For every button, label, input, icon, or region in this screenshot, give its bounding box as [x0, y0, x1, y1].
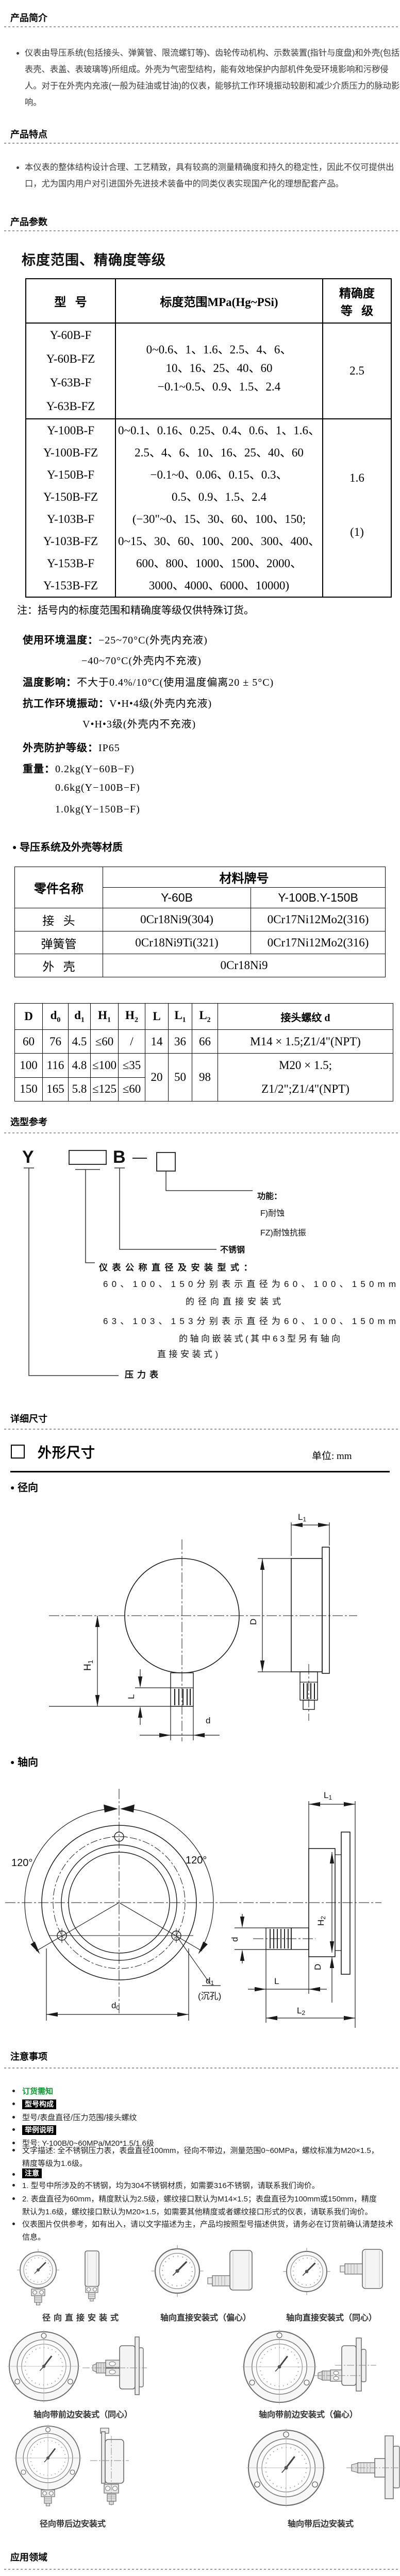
svg-text:d: d: [230, 1937, 240, 1942]
svg-text:径向带后边安装式: 径向带后边安装式: [40, 2519, 106, 2529]
svg-text:—: —: [132, 1149, 147, 1165]
svg-text:L1: L1: [298, 1512, 306, 1523]
svg-text:L2: L2: [297, 2006, 305, 2016]
svg-text:F)耐蚀: F)耐蚀: [260, 1209, 285, 1218]
svg-text:120°: 120°: [186, 1855, 207, 1866]
svg-text:直接安装式): 直接安装式): [157, 1349, 221, 1359]
svg-text:轴向带后边安装式: 轴向带后边安装式: [288, 2519, 354, 2529]
svg-text:d0: d0: [111, 2001, 120, 2011]
svg-text:D: D: [313, 1964, 323, 1970]
svg-text:d1: d1: [206, 1976, 214, 1987]
svg-text:径向直接安装式: 径向直接安装式: [42, 2313, 122, 2323]
svg-text:63、103、153分别表示直径为60、100、150mm: 63、103、153分别表示直径为60、100、150mm: [103, 1316, 399, 1326]
svg-text:轴向带前边安装式（偏心）: 轴向带前边安装式（偏心）: [259, 2410, 358, 2419]
svg-text:功能：: 功能：: [257, 1191, 282, 1201]
svg-text:轴向直接安装式（偏心）: 轴向直接安装式（偏心）: [160, 2313, 251, 2323]
svg-text:H2: H2: [316, 1916, 327, 1926]
svg-text:压力表: 压力表: [125, 1369, 162, 1380]
svg-text:不锈钢: 不锈钢: [220, 1245, 245, 1255]
svg-text:60、100、150分别表示直径为60、100、150mm: 60、100、150分别表示直径为60、100、150mm: [103, 1279, 399, 1289]
svg-text:轴向直接安装式（同心）: 轴向直接安装式（同心）: [286, 2313, 377, 2323]
svg-text:Y: Y: [22, 1147, 34, 1167]
svg-text:H1: H1: [82, 1660, 94, 1671]
svg-text:的轴向嵌装式(其中63型另有轴向: 的轴向嵌装式(其中63型另有轴向: [179, 1334, 343, 1344]
svg-text:d: d: [206, 1716, 210, 1725]
svg-text:120°: 120°: [11, 1857, 32, 1869]
svg-text:(沉孔): (沉孔): [198, 1991, 221, 2001]
svg-text:L1: L1: [324, 1790, 332, 1801]
svg-text:的径向直接安装式: 的径向直接安装式: [186, 1297, 285, 1307]
svg-text:D: D: [248, 1619, 258, 1625]
svg-text:L: L: [274, 1976, 279, 1986]
svg-text:L: L: [126, 1694, 136, 1699]
svg-text:B: B: [113, 1147, 126, 1167]
svg-text:FZ)耐蚀抗振: FZ)耐蚀抗振: [260, 1228, 306, 1238]
svg-text:轴向带前边安装式（同心）: 轴向带前边安装式（同心）: [34, 2410, 132, 2419]
svg-text:仪表公称直径及安装型式：: 仪表公称直径及安装型式：: [98, 1262, 257, 1273]
